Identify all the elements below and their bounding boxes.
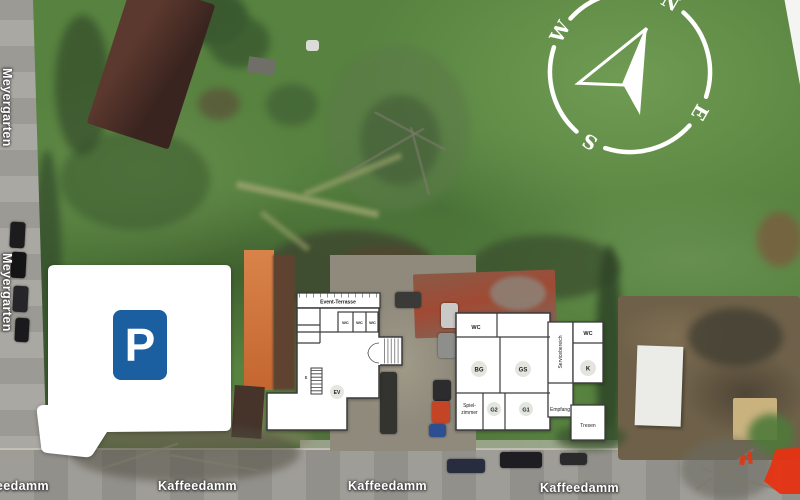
wc-label: WC (369, 320, 376, 325)
ev-label: EV (334, 390, 341, 396)
floorplan-right: WC BG GS Spiel- zimmer G2 G1 Empfang Ser… (448, 306, 612, 448)
stair-label: B (305, 375, 308, 380)
compass-needle-fill (623, 28, 646, 115)
barn-roof (87, 0, 216, 150)
wc-label: WC (583, 331, 592, 337)
swing-structure (757, 212, 800, 267)
compass-s: S (579, 128, 602, 154)
aerial-site-plan: P Event-Terrasse WC WC WC B EV (0, 0, 800, 500)
empfang-label: Empfang (550, 407, 570, 413)
wc-label: WC (342, 320, 349, 325)
white-car-top (306, 40, 319, 51)
car (447, 459, 485, 473)
garden-dirt-patch (198, 88, 240, 120)
g1-label: G1 (522, 408, 529, 414)
g2-label: G2 (490, 408, 497, 414)
street-label-kaffeedamm: Kaffeedamm (540, 481, 619, 495)
street-label-meyergarten: Meyergarten (0, 68, 14, 147)
garden-bush (266, 84, 318, 126)
compass-rose: N E S W (545, 0, 717, 162)
street-label-kaffeedamm: Kaffeedamm (348, 479, 427, 493)
red-roof-gray-patch (490, 276, 546, 310)
compass-n: N (657, 0, 683, 17)
compass-w: W (545, 17, 576, 48)
car-blue (429, 424, 446, 437)
bg-label: BG (475, 368, 484, 374)
wc-label: WC (471, 325, 480, 331)
yard-junk (688, 308, 783, 366)
car (560, 453, 587, 465)
car (9, 222, 25, 249)
gs-label: GS (519, 368, 528, 374)
k-label: K (586, 367, 591, 373)
street-label-kaffeedamm: Kaffeedamm (0, 479, 49, 493)
field-shadow (60, 130, 210, 230)
car (500, 452, 542, 468)
spielzimmer-label: zimmer (461, 410, 478, 416)
event-terrace-label: Event-Terrasse (320, 300, 356, 306)
tresen-label: Tresen (580, 423, 596, 429)
overhang-trees-bottom-right (680, 438, 775, 500)
compass-e: E (686, 100, 712, 124)
white-shed-roof (635, 345, 684, 427)
spielzimmer-label: Spiel- (463, 403, 476, 409)
wc-label: WC (356, 320, 363, 325)
servicebereich-label: Servicebereich (558, 335, 564, 368)
building-outline (267, 308, 402, 430)
street-label-kaffeedamm: Kaffeedamm (158, 479, 237, 493)
garden-shed (247, 56, 276, 76)
street-label-meyergarten: Meyergarten (0, 253, 14, 332)
white-corner-wedge (775, 0, 800, 85)
parking-sign: P (113, 310, 167, 380)
floorplan-left: Event-Terrasse WC WC WC B EV (260, 286, 408, 436)
